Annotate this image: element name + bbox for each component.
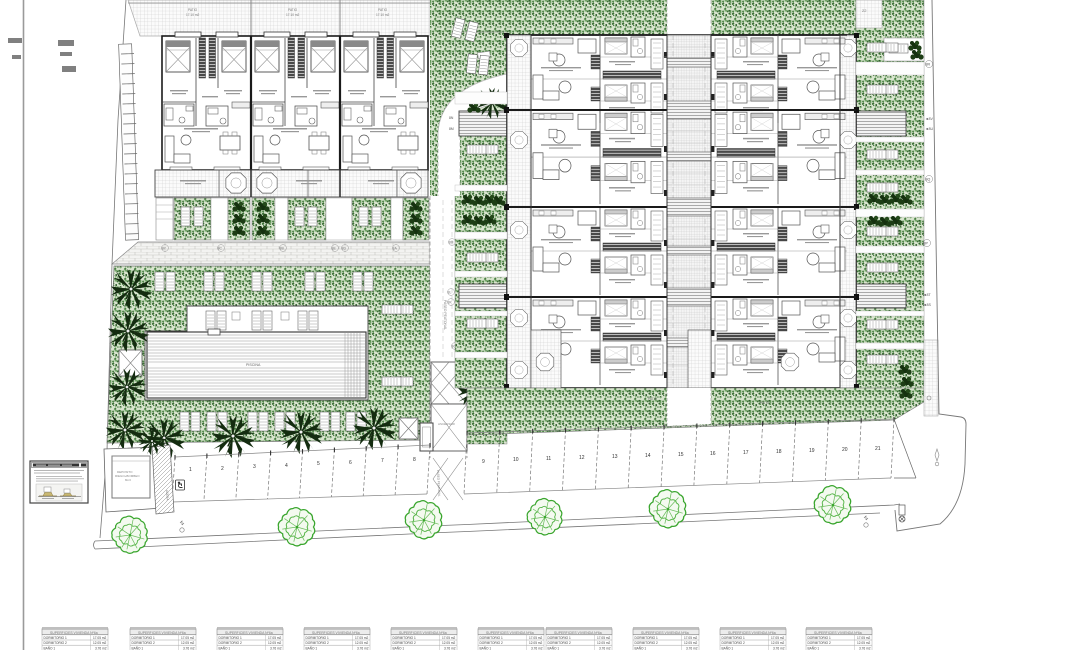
svg-text:9: 9 xyxy=(482,459,485,465)
svg-text:ACERA: ACERA xyxy=(165,490,170,501)
svg-text:12: 12 xyxy=(579,455,585,461)
svg-text:7: 7 xyxy=(381,458,384,464)
svg-text:19: 19 xyxy=(809,448,815,454)
svg-text:13: 13 xyxy=(612,454,618,460)
svg-text:17: 17 xyxy=(743,450,749,456)
svg-text:8A: 8A xyxy=(393,247,398,251)
svg-text:6: 6 xyxy=(349,460,352,466)
svg-text:PATIO: PATIO xyxy=(288,8,298,12)
svg-text:PATIO: PATIO xyxy=(648,397,658,401)
svg-text:4: 4 xyxy=(285,463,288,469)
svg-text:8N: 8N xyxy=(449,116,454,120)
svg-text:8M: 8M xyxy=(449,241,454,245)
svg-text:3: 3 xyxy=(253,464,256,470)
svg-text:11: 11 xyxy=(546,456,551,462)
svg-text:8L: 8L xyxy=(448,291,452,295)
svg-text:8K: 8K xyxy=(448,301,453,305)
svg-text:2: 2 xyxy=(221,466,224,472)
svg-text:PATIO: PATIO xyxy=(378,8,388,12)
svg-text:5: 5 xyxy=(317,461,320,467)
svg-text:10: 10 xyxy=(513,457,519,463)
svg-text:8C: 8C xyxy=(218,247,223,251)
svg-text:◄8S: ◄8S xyxy=(923,303,932,307)
svg-text:8D: 8D xyxy=(342,247,347,251)
svg-text:22: 22 xyxy=(862,8,867,13)
svg-text:8M: 8M xyxy=(449,127,454,131)
svg-text:8E: 8E xyxy=(332,247,337,251)
svg-text:14: 14 xyxy=(645,453,651,459)
svg-text:ASCENSOR: ASCENSOR xyxy=(438,422,456,426)
svg-text:16: 16 xyxy=(710,451,716,457)
svg-text:◄8T: ◄8T xyxy=(923,293,932,297)
svg-text:8: 8 xyxy=(413,457,416,463)
svg-text:PATIO: PATIO xyxy=(188,8,198,12)
svg-text:8P: 8P xyxy=(924,242,929,246)
svg-text:PISCINA: PISCINA xyxy=(246,363,261,367)
svg-text:8P: 8P xyxy=(162,247,167,251)
svg-text:17.10 m2: 17.10 m2 xyxy=(186,13,200,17)
svg-text:15: 15 xyxy=(678,452,684,458)
svg-text:21: 21 xyxy=(875,446,881,452)
svg-text:8R: 8R xyxy=(926,63,931,67)
svg-text:8B: 8B xyxy=(280,247,285,251)
svg-text:20: 20 xyxy=(842,447,848,453)
svg-text:PASEO PEATONAL: PASEO PEATONAL xyxy=(443,300,447,330)
svg-text:8m3: 8m3 xyxy=(125,478,131,482)
svg-text:1: 1 xyxy=(189,467,192,473)
svg-text:17.10 m2: 17.10 m2 xyxy=(376,13,390,17)
svg-text:◄8V: ◄8V xyxy=(925,117,934,121)
svg-text:17.10 m2: 17.10 m2 xyxy=(286,13,300,17)
svg-text:◄8U: ◄8U xyxy=(925,127,934,131)
svg-text:PATIO: PATIO xyxy=(760,401,770,405)
svg-text:18: 18 xyxy=(776,449,782,455)
svg-text:8Q: 8Q xyxy=(926,178,931,182)
